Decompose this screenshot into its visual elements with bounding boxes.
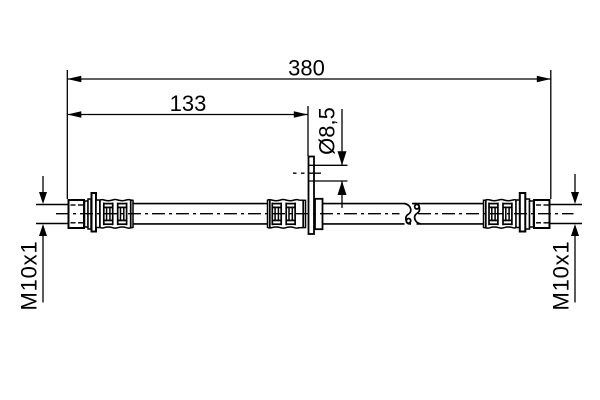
svg-text:380: 380 bbox=[288, 56, 325, 81]
svg-text:Ø8,5: Ø8,5 bbox=[315, 107, 340, 155]
svg-text:M10x1: M10x1 bbox=[549, 240, 574, 310]
svg-text:M10x1: M10x1 bbox=[17, 240, 42, 310]
svg-text:133: 133 bbox=[170, 91, 207, 116]
